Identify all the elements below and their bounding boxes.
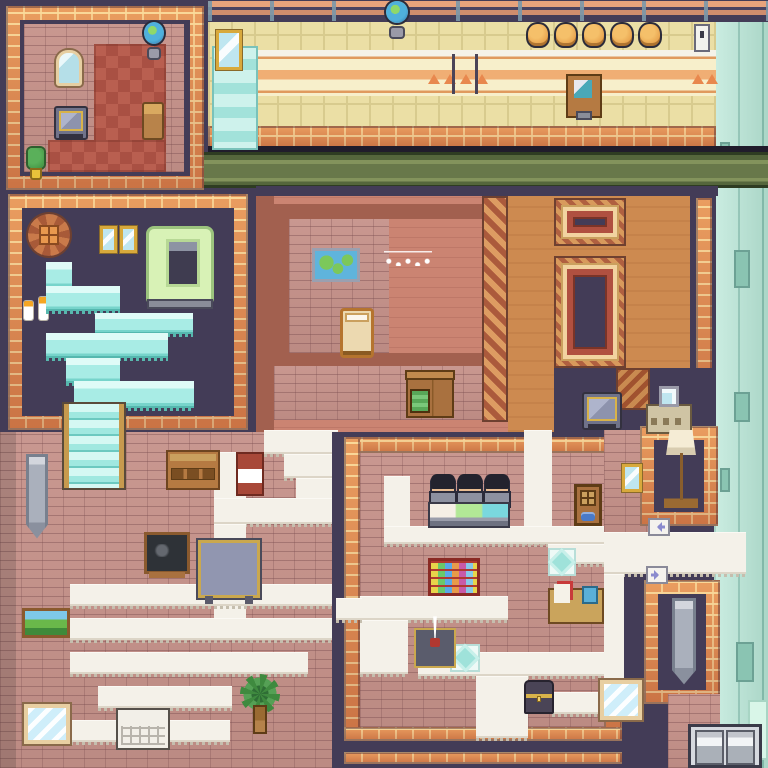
platform-5 (66, 358, 120, 383)
red-chair (236, 452, 264, 496)
globe-top-left (142, 22, 166, 58)
writing-desk (414, 628, 456, 668)
bed[interactable] (340, 308, 374, 358)
track-post-2 (475, 54, 478, 94)
stool-1 (526, 22, 550, 48)
shop-path-s (476, 676, 528, 738)
cactus-plant (26, 148, 46, 180)
path-b (264, 430, 338, 454)
corridor-south-wall (208, 126, 716, 148)
tv-top-left[interactable] (54, 106, 88, 140)
string-lights (384, 242, 432, 266)
chalkboard (144, 532, 190, 574)
ceiling-beam-band (208, 1, 768, 21)
study-left-edge (0, 432, 16, 768)
stool-3 (582, 22, 606, 48)
reception-desk (566, 74, 602, 118)
brick-porthole (28, 214, 70, 256)
sign-arrow-left[interactable] (648, 518, 670, 536)
band-gap (256, 186, 718, 196)
slate-board (198, 540, 260, 598)
wooden-chair (142, 102, 164, 140)
candles (24, 296, 48, 320)
stool-4 (610, 22, 634, 48)
landscape-painting (22, 608, 70, 638)
bedroom-left-path (256, 196, 274, 438)
east-path-v (604, 574, 624, 692)
bedroom-cabinet[interactable] (406, 374, 454, 418)
platform-2 (46, 286, 120, 311)
wall-mirror-2 (120, 226, 137, 253)
floor-lamp (664, 430, 698, 508)
hall-ornament-large (554, 256, 626, 368)
path-h (70, 618, 338, 640)
shop-door[interactable] (574, 484, 602, 526)
room-tl-carpet-wide (48, 140, 166, 172)
teal-window-5 (736, 642, 754, 682)
sideboard (166, 450, 220, 490)
platform-3 (95, 313, 193, 334)
elevator[interactable] (688, 724, 762, 768)
hall-tv[interactable] (582, 392, 622, 430)
mail-shelf[interactable] (116, 708, 170, 750)
corridor-mirror (216, 30, 242, 70)
staircase-down[interactable] (64, 404, 124, 488)
shop-clerk-3[interactable] (486, 478, 508, 504)
game-viewport[interactable] (0, 0, 768, 768)
wall-switch[interactable] (694, 24, 710, 52)
east-path-band (604, 532, 746, 574)
platform-4 (46, 333, 168, 358)
platform-1 (46, 262, 72, 288)
shop-frame-top (344, 437, 622, 453)
hall-ornament-small (554, 198, 626, 246)
shop-clerk-2[interactable] (459, 478, 481, 504)
shop-path-west (384, 476, 410, 528)
arched-window (56, 50, 82, 86)
wall-mirror-1 (100, 226, 117, 253)
stool-2 (554, 22, 578, 48)
sticker-poster (428, 558, 480, 596)
path-c (284, 454, 338, 478)
olive-band (148, 152, 768, 188)
shop-frame-left (344, 437, 360, 741)
shop-path-se (552, 692, 604, 714)
shop-door-w (336, 598, 362, 620)
shop-clerk-1[interactable] (432, 478, 454, 504)
path-i (70, 652, 308, 674)
shiny-window-w (24, 704, 70, 744)
stool-5 (638, 22, 662, 48)
shop-path-row1 (384, 526, 604, 544)
small-mirror (622, 464, 642, 492)
south-wall-brick (344, 752, 622, 764)
green-machine[interactable] (146, 226, 214, 306)
track-post-1 (452, 54, 455, 94)
corridor-globe (384, 1, 410, 37)
teal-window-4 (720, 468, 730, 492)
sign-arrow-right[interactable] (646, 566, 668, 584)
teal-window-2 (734, 250, 750, 288)
work-desks (548, 588, 604, 624)
world-map-picture (312, 248, 360, 282)
bedroom-divider (482, 196, 508, 422)
bedroom-wall-panel (289, 219, 389, 353)
teal-window-3 (734, 392, 750, 422)
shiny-window-e (600, 680, 642, 720)
path-j (98, 686, 232, 708)
shop-counter[interactable] (428, 502, 510, 528)
floor-tile-1 (548, 548, 576, 576)
treasure-chest[interactable] (524, 680, 554, 714)
path-e (214, 498, 338, 524)
shop-path-sw (360, 620, 408, 674)
palm-plant (240, 674, 280, 734)
running-track (258, 50, 716, 96)
